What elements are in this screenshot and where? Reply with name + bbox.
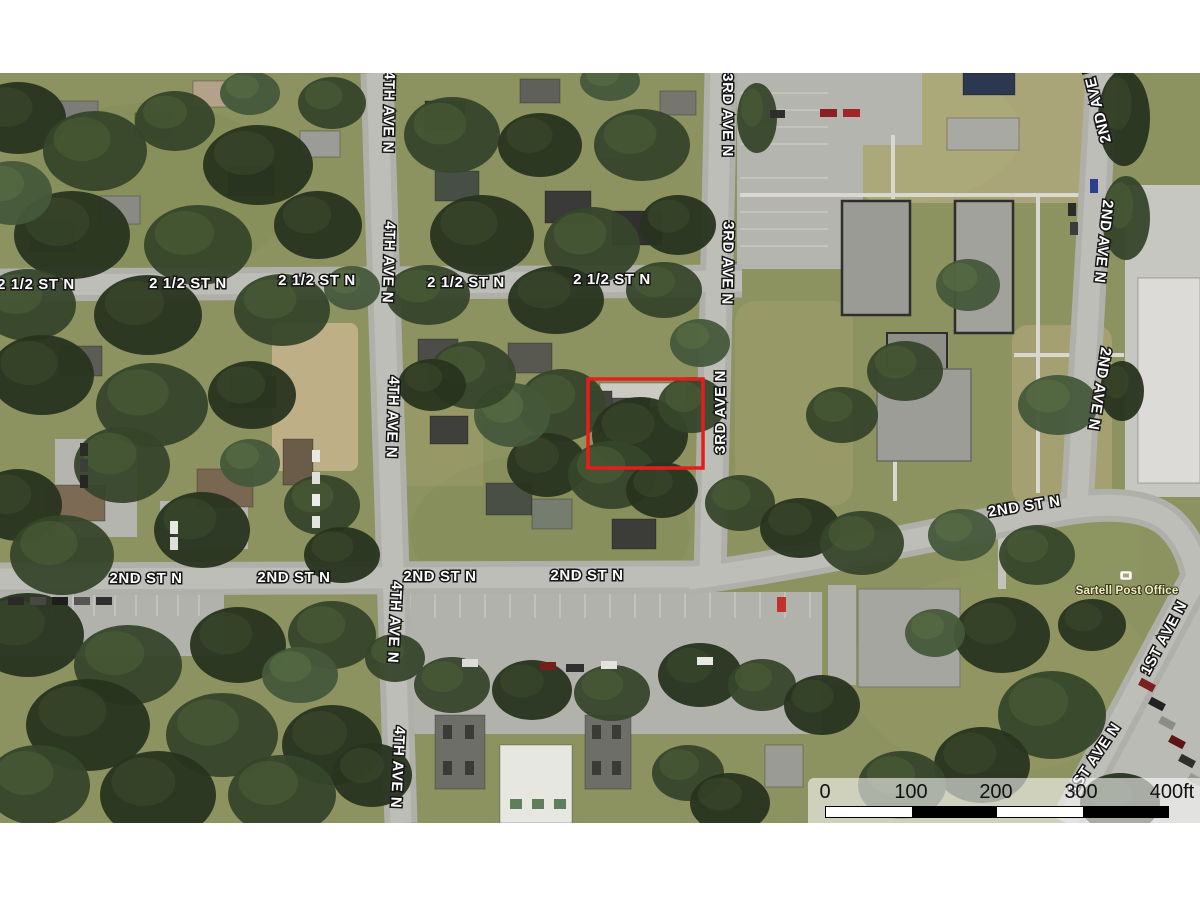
playground xyxy=(963,73,1015,95)
aerial-map[interactable]: Sartell Post Office 2 1/2 ST N 2 1/2 ST … xyxy=(0,73,1200,823)
aerial-imagery: Sartell Post Office 2 1/2 ST N 2 1/2 ST … xyxy=(0,73,1200,823)
scale-tick-100: 100 xyxy=(894,781,927,804)
street-label-2nd-st-n: 2ND ST N xyxy=(109,570,182,587)
scale-bar: 0 100 200 300 400ft xyxy=(808,778,1200,823)
street-label-3rd-ave-n: 3RD AVE N xyxy=(719,73,736,157)
street-label-2half-st-n: 2 1/2 ST N xyxy=(427,274,505,291)
scale-tick-200: 200 xyxy=(979,781,1012,804)
street-label-2half-st-n: 2 1/2 ST N xyxy=(0,276,75,293)
street-label-2nd-st-n: 2ND ST N xyxy=(257,569,330,586)
street-label-4th-ave-n: 4TH AVE N xyxy=(379,73,397,153)
scale-bar-segments xyxy=(825,806,1169,818)
scale-tick-300: 300 xyxy=(1064,781,1097,804)
street-label-2nd-st-n: 2ND ST N xyxy=(550,567,623,584)
scale-tick-0: 0 xyxy=(819,781,830,804)
street-label-2half-st-n: 2 1/2 ST N xyxy=(573,271,651,288)
post-office-label: Sartell Post Office xyxy=(1076,585,1179,597)
street-label-4th-ave-n: 4TH AVE N xyxy=(383,376,403,459)
street-label-2half-st-n: 2 1/2 ST N xyxy=(278,272,356,289)
street-label-2nd-st-n: 2ND ST N xyxy=(403,568,476,585)
street-label-4th-ave-n: 4TH AVE N xyxy=(379,221,399,304)
scale-tick-400ft: 400ft xyxy=(1150,781,1194,804)
street-label-2half-st-n: 2 1/2 ST N xyxy=(149,275,227,292)
street-label-3rd-ave-n: 3RD AVE N xyxy=(718,221,736,305)
street-label-3rd-ave-n: 3RD AVE N xyxy=(712,370,729,454)
